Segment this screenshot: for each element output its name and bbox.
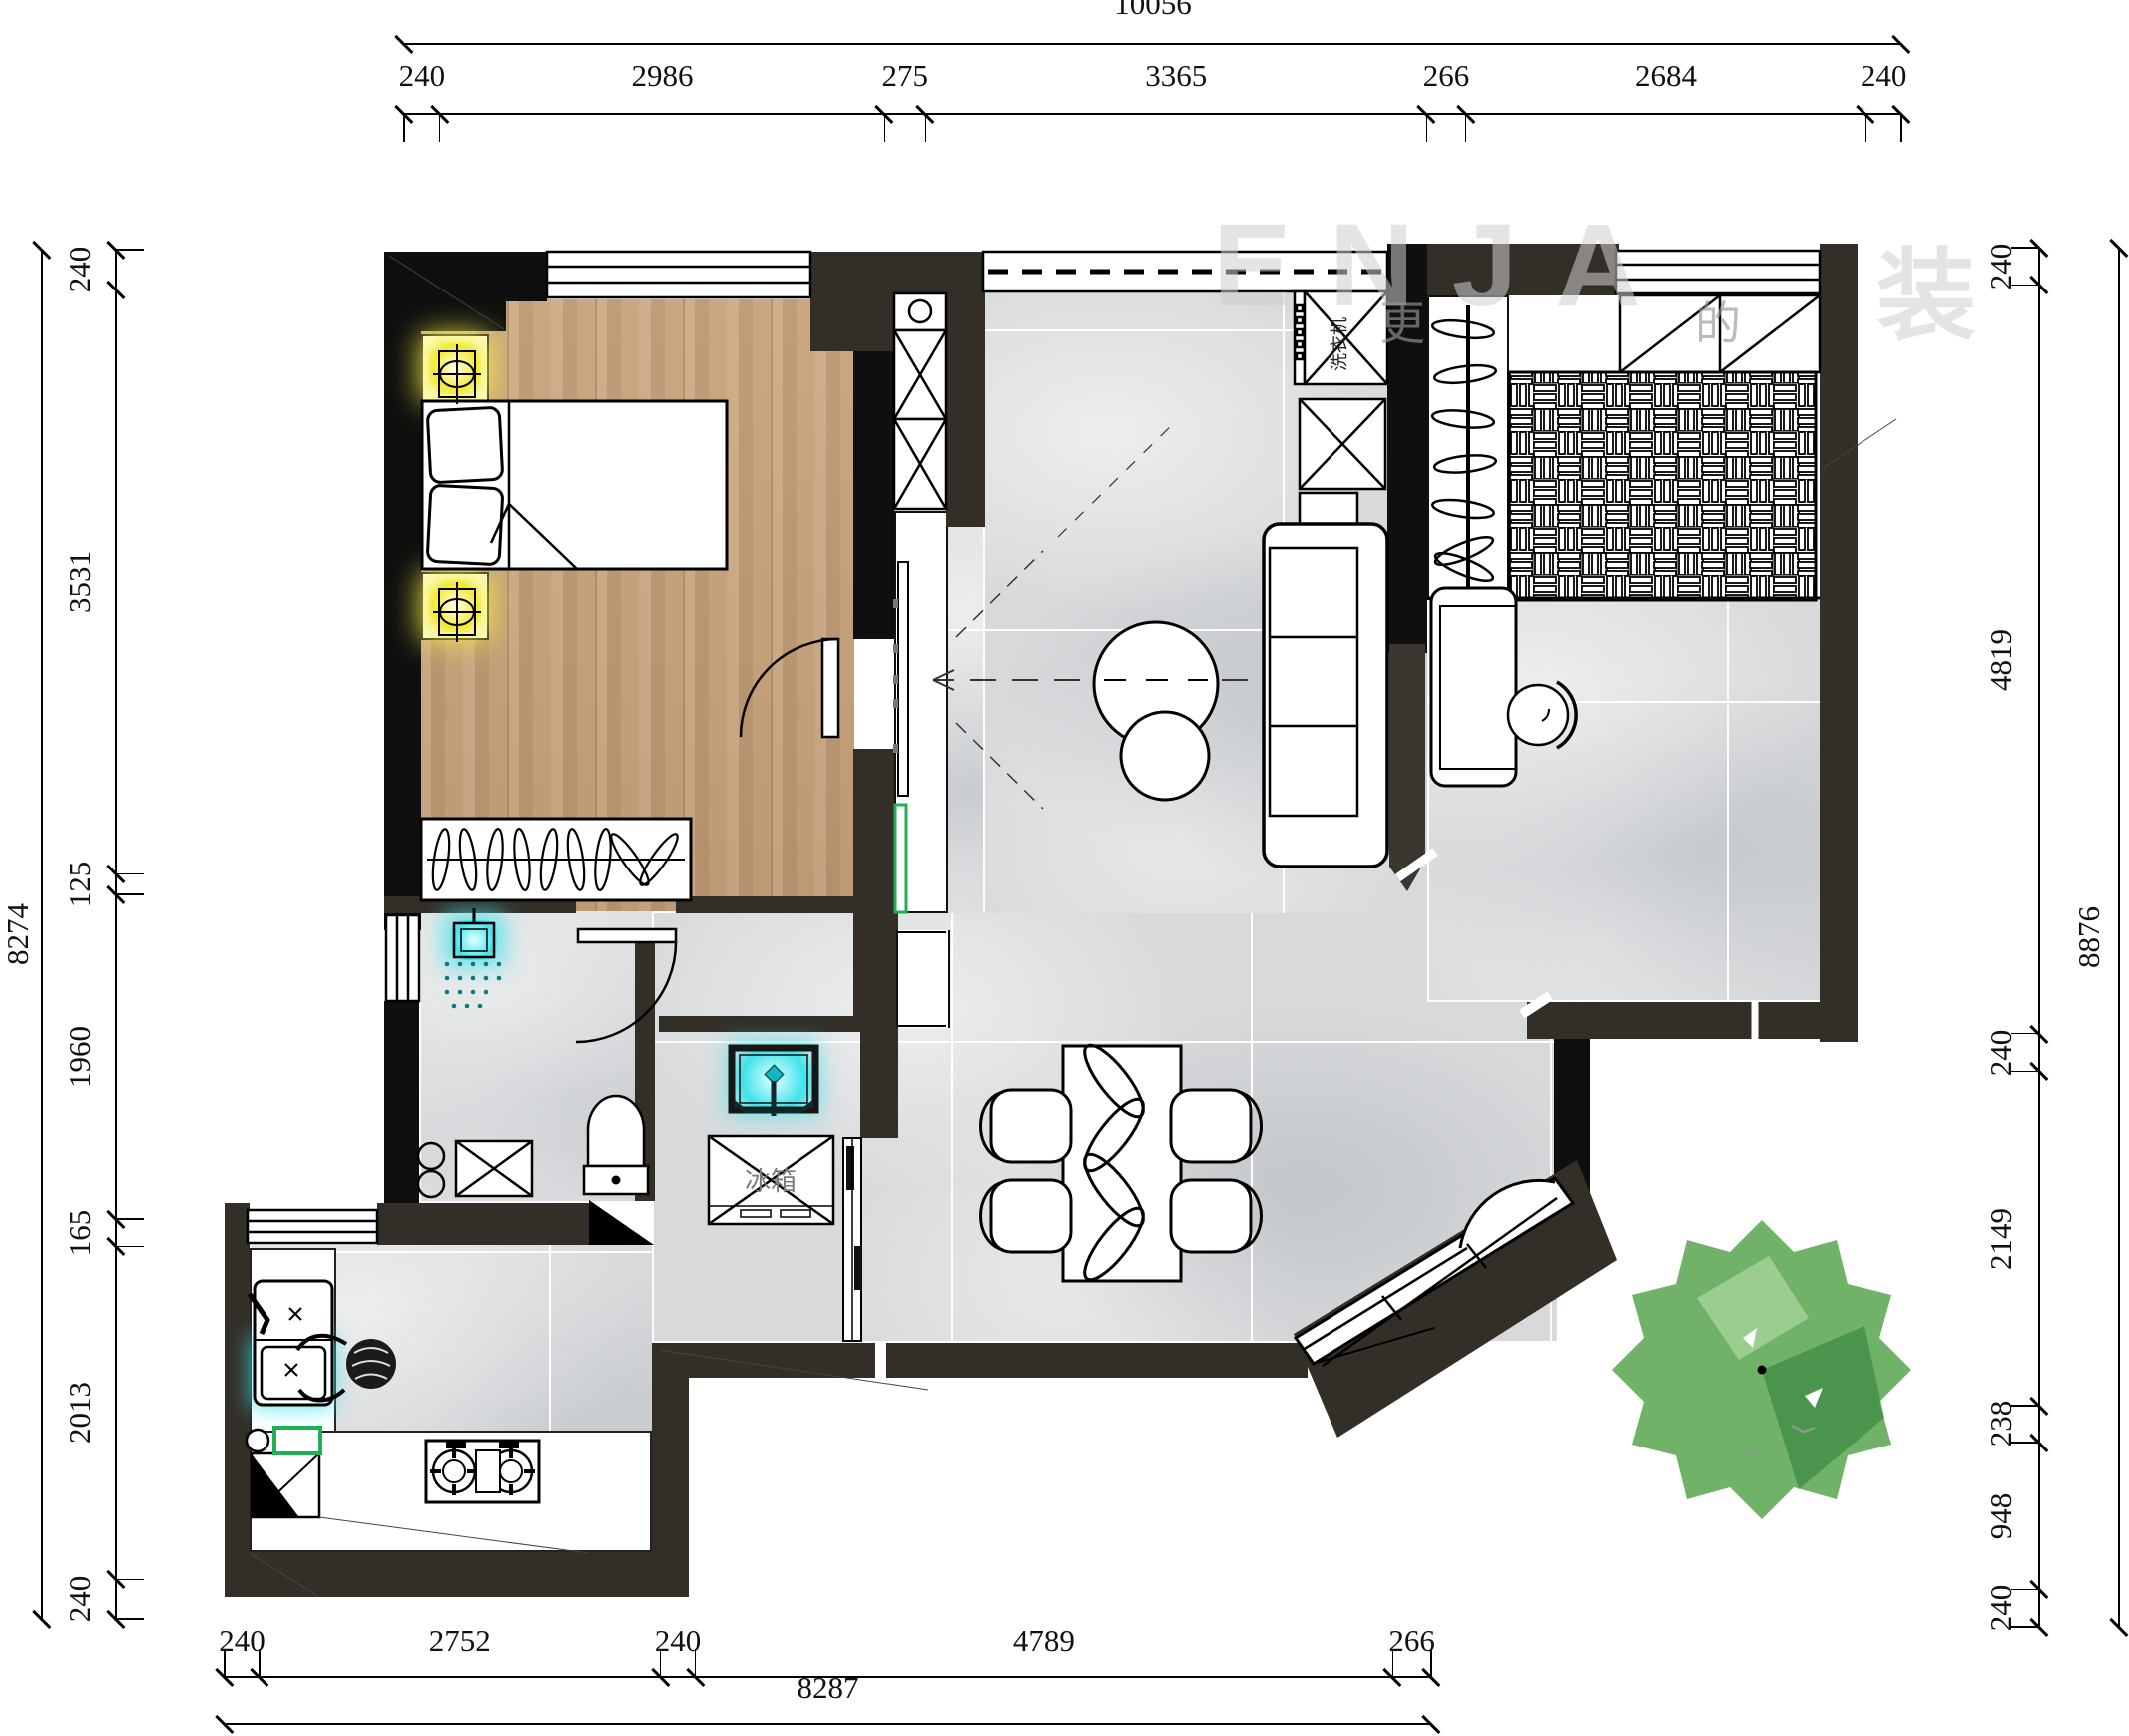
kitchen-knob [247,1430,268,1451]
watermark-tagline-left: 更 [1379,288,1425,353]
kitchen-green-accent [274,1428,320,1453]
bathroom-door [576,929,676,1042]
wash-basin [732,1048,815,1116]
kitchen-sink [250,1281,332,1405]
sofa [1264,524,1387,867]
sliding-door [843,1138,862,1341]
plan-lineart: 洗衣机 [0,0,2129,1736]
bedroom-window [547,252,810,297]
watermark-tagline-right: 的 [1695,288,1741,353]
wall-wedge [589,1200,654,1245]
fridge-label: 冰箱 [745,1167,797,1197]
bed [422,401,727,569]
dining-table [1063,1038,1181,1288]
bathroom-window [386,915,419,1001]
bedroom-door [741,639,838,737]
desk-chair [1508,682,1576,748]
entry-cabinet-column [894,293,946,509]
desk [1431,588,1516,786]
kitchen-window [248,1210,377,1243]
fridge: 冰箱 [709,1136,833,1224]
sofa-back-wall [1389,644,1425,891]
watermark-glyph: 装 [1876,215,1976,359]
kitchen-corner-unit [252,1453,319,1517]
watermark-brand: ENJA [1213,198,1679,333]
stove [426,1441,539,1502]
toilet [584,1096,648,1194]
wardrobe [421,819,691,900]
bathroom-cabinet [418,1141,532,1197]
shower-head [445,908,502,1008]
storage-cabinet [1300,399,1385,527]
coffee-tables [1094,622,1218,800]
lamp-symbol [433,344,481,404]
clothes-rod-balcony [1431,305,1497,591]
tv-green-accent [895,805,906,912]
woven-mat [1509,372,1816,600]
corner-slash [1519,992,1553,1019]
lamp-symbol [433,582,481,642]
tree [1612,1220,1911,1519]
tv [893,562,908,796]
floor-plan-page: 洗衣机 [0,0,2129,1736]
